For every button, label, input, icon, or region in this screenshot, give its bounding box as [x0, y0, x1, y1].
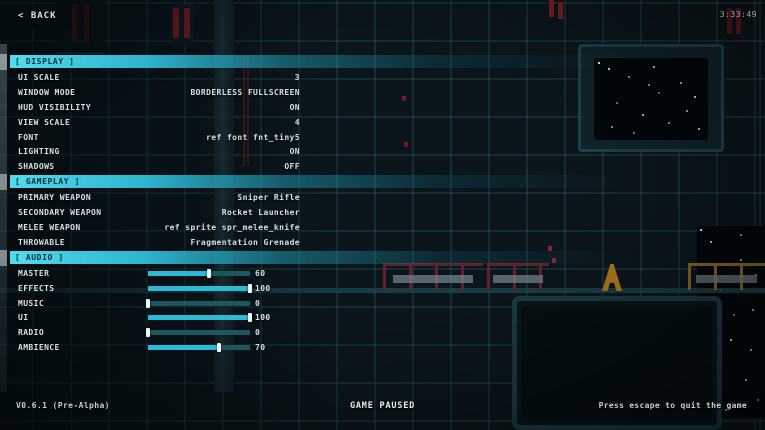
- settings-row-effects[interactable]: EFFECTS100: [10, 281, 302, 296]
- settings-row-secondary-weapon[interactable]: SECONDARY WEAPONRocket Launcher: [10, 205, 302, 220]
- row-label: SECONDARY WEAPON: [18, 208, 101, 217]
- settings-row-ui-scale[interactable]: UI SCALE3: [10, 70, 302, 85]
- row-label: MUSIC: [18, 299, 148, 308]
- slider-fill: [148, 315, 250, 320]
- settings-row-ui[interactable]: UI100: [10, 310, 302, 325]
- row-value: Fragmentation Grenade: [190, 238, 300, 247]
- row-value: 0: [255, 328, 275, 337]
- volume-slider[interactable]: [148, 271, 250, 276]
- settings-row-lighting[interactable]: LIGHTINGON: [10, 144, 302, 159]
- settings-menu: [ DISPLAY ]UI SCALE3WINDOW MODEBORDERLES…: [10, 54, 302, 355]
- row-value: 60: [255, 269, 275, 278]
- row-value: Rocket Launcher: [222, 208, 300, 217]
- row-label: RADIO: [18, 328, 148, 337]
- slider-handle[interactable]: [207, 269, 211, 278]
- version-label: V0.6.1 (Pre-Alpha): [16, 401, 110, 410]
- row-label: FONT: [18, 133, 39, 142]
- row-value: BORDERLESS FULLSCREEN: [190, 88, 300, 97]
- session-timer: 3:33:49: [720, 10, 757, 19]
- settings-row-hud-visibility[interactable]: HUD VISIBILITYON: [10, 100, 302, 115]
- settings-row-music[interactable]: MUSIC0: [10, 296, 302, 311]
- back-button[interactable]: < BACK: [10, 6, 69, 26]
- volume-slider[interactable]: [148, 315, 250, 320]
- volume-slider[interactable]: [148, 345, 250, 350]
- row-label: PRIMARY WEAPON: [18, 193, 91, 202]
- slider-fill: [148, 271, 209, 276]
- row-value: 70: [255, 343, 275, 352]
- row-label: LIGHTING: [18, 147, 60, 156]
- settings-row-melee-weapon[interactable]: MELEE WEAPONref sprite spr_melee_knife: [10, 220, 302, 235]
- settings-row-font[interactable]: FONTref font fnt_tiny5: [10, 130, 302, 145]
- row-value: 3: [295, 73, 300, 82]
- settings-row-radio[interactable]: RADIO0: [10, 325, 302, 340]
- row-value: 100: [255, 284, 275, 293]
- row-value: ref sprite spr_melee_knife: [164, 223, 300, 232]
- volume-slider[interactable]: [148, 301, 250, 306]
- row-label: VIEW SCALE: [18, 118, 70, 127]
- slider-handle[interactable]: [146, 299, 150, 308]
- row-label: MASTER: [18, 269, 148, 278]
- slider-handle[interactable]: [146, 328, 150, 337]
- row-label: WINDOW MODE: [18, 88, 75, 97]
- row-label: UI: [18, 313, 148, 322]
- settings-row-throwable[interactable]: THROWABLEFragmentation Grenade: [10, 235, 302, 250]
- row-label: HUD VISIBILITY: [18, 103, 91, 112]
- slider-handle[interactable]: [248, 284, 252, 293]
- row-label: EFFECTS: [18, 284, 148, 293]
- row-value: 4: [295, 118, 300, 127]
- slider-handle[interactable]: [217, 343, 221, 352]
- row-value: ref font fnt_tiny5: [206, 133, 300, 142]
- row-value: OFF: [284, 162, 300, 171]
- row-value: ON: [290, 147, 300, 156]
- row-value: 0: [255, 299, 275, 308]
- slider-fill: [148, 345, 219, 350]
- settings-row-ambience[interactable]: AMBIENCE70: [10, 340, 302, 355]
- row-label: THROWABLE: [18, 238, 65, 247]
- section-header-display: [ DISPLAY ]: [10, 55, 622, 68]
- row-label: AMBIENCE: [18, 343, 148, 352]
- settings-row-view-scale[interactable]: VIEW SCALE4: [10, 115, 302, 130]
- section-header-gameplay: [ GAMEPLAY ]: [10, 175, 622, 188]
- game-screen: < BACK 3:33:49 [ DISPLAY ]UI SCALE3WINDO…: [0, 0, 765, 430]
- settings-row-primary-weapon[interactable]: PRIMARY WEAPONSniper Rifle: [10, 190, 302, 205]
- slider-fill: [148, 286, 250, 291]
- slider-handle[interactable]: [248, 313, 252, 322]
- escape-hint-label: Press escape to quit the game: [599, 401, 747, 410]
- row-label: MELEE WEAPON: [18, 223, 81, 232]
- volume-slider[interactable]: [148, 286, 250, 291]
- settings-row-master[interactable]: MASTER60: [10, 266, 302, 281]
- section-header-audio: [ AUDIO ]: [10, 251, 622, 264]
- row-label: SHADOWS: [18, 162, 55, 171]
- row-value: Sniper Rifle: [237, 193, 300, 202]
- row-value: 100: [255, 313, 275, 322]
- volume-slider[interactable]: [148, 330, 250, 335]
- row-value: ON: [290, 103, 300, 112]
- row-label: UI SCALE: [18, 73, 60, 82]
- settings-row-window-mode[interactable]: WINDOW MODEBORDERLESS FULLSCREEN: [10, 85, 302, 100]
- settings-row-shadows[interactable]: SHADOWSOFF: [10, 159, 302, 174]
